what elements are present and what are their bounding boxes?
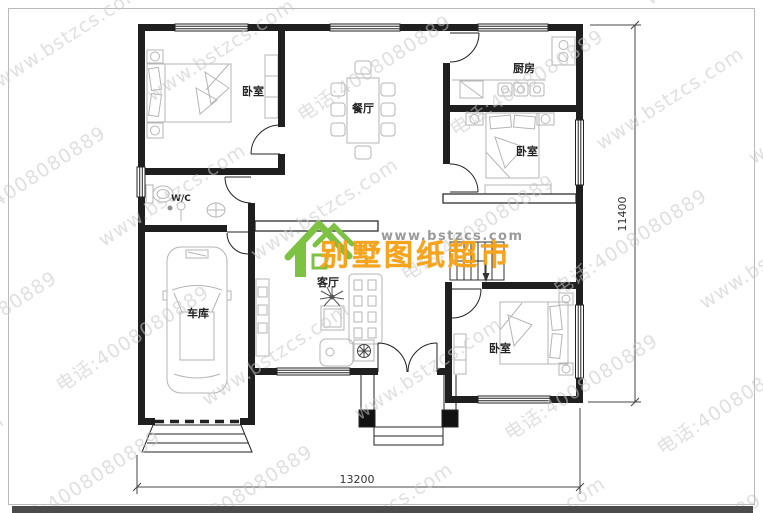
shell-plant xyxy=(357,344,371,358)
furniture-layer xyxy=(146,37,575,393)
entrance-porch xyxy=(359,375,458,445)
label-bedroom-bottom: 卧室 xyxy=(489,341,511,355)
window-top-2 xyxy=(330,24,400,31)
dimension-height-label: 11400 xyxy=(616,197,629,232)
bed-middle-right xyxy=(466,113,554,194)
bed-bottom-right xyxy=(454,293,573,375)
plant xyxy=(320,286,344,306)
door-garage xyxy=(227,232,248,254)
car xyxy=(163,247,231,393)
label-dining: 餐厅 xyxy=(351,101,374,115)
floor-plan-screenshot: 13200 11400 卧室 餐厅 厨房 卧室 W/C 车库 客厅 卧室 www… xyxy=(0,0,763,513)
porch-column-right xyxy=(442,410,458,427)
window-bedroom-bottom xyxy=(478,396,550,403)
window-bedroom-right xyxy=(576,120,584,185)
label-garage: 车库 xyxy=(187,306,209,320)
door-bedroom-top-left xyxy=(251,125,280,154)
door-bedroom-right xyxy=(450,164,478,192)
door-wc xyxy=(225,177,251,203)
porch-column-left xyxy=(359,410,375,427)
garage-ramp xyxy=(142,425,252,452)
window-top-3 xyxy=(478,24,548,31)
bed-top-left xyxy=(147,50,231,138)
brand-title: 别墅图纸超市 xyxy=(320,239,512,271)
dimension-right xyxy=(588,21,641,406)
window-top-1 xyxy=(175,24,248,31)
porch-step-2 xyxy=(374,436,443,445)
label-bedroom-right: 卧室 xyxy=(516,144,538,158)
window-wc xyxy=(137,167,145,197)
bottom-dark-strip xyxy=(12,506,753,513)
door-kitchen xyxy=(450,33,479,62)
label-bedroom-top-left: 卧室 xyxy=(242,84,264,98)
wardrobe-top-left xyxy=(265,55,278,118)
window-bedroom-bottom-right-wall xyxy=(576,305,584,378)
label-kitchen: 厨房 xyxy=(513,61,535,75)
entrance-double-door xyxy=(378,343,437,372)
dimension-width-label: 13200 xyxy=(340,473,375,486)
porch-step-1 xyxy=(374,427,443,436)
door-bedroom-bottom xyxy=(452,289,481,318)
label-wc: W/C xyxy=(171,194,191,204)
window-living xyxy=(277,368,350,375)
